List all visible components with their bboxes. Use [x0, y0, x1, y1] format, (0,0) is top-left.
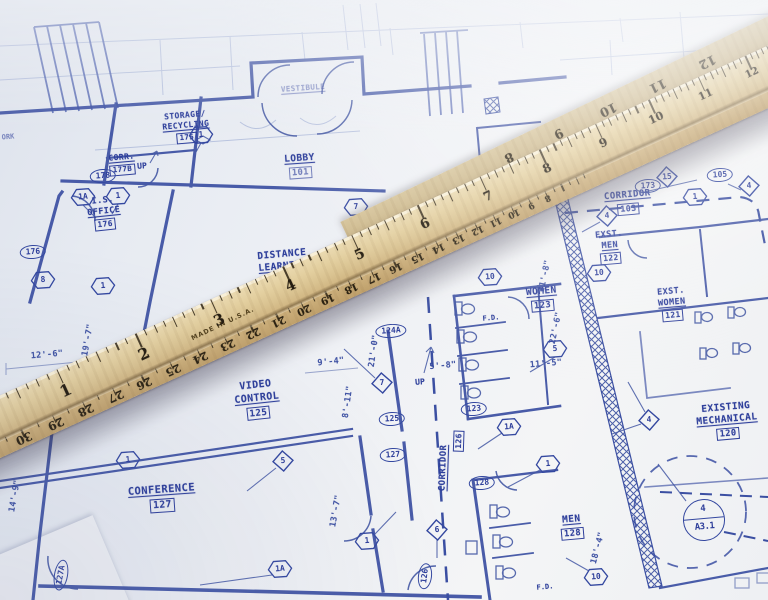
room-number: 176 [94, 218, 116, 232]
ruler-cm-number: 25 [161, 360, 185, 380]
room-label-exst-women: EXST. WOMEN 121 [657, 285, 688, 322]
door-tag-hexagon: 1 [89, 275, 116, 297]
door-tag-hexagon: 5 [541, 338, 568, 360]
ruler-cm-number: 24 [188, 348, 212, 368]
dimension-label: 13'-7" [328, 494, 343, 528]
tag-number: 6 [423, 519, 450, 541]
door-tag-diamond: 4 [635, 409, 662, 431]
room-name: CORRIDOR [438, 445, 451, 492]
room-name: WOMEN [658, 296, 686, 309]
room-name: CONFERENCE [127, 481, 195, 499]
room-number: 126 [453, 430, 465, 452]
tag-number: 5 [269, 450, 296, 472]
room-label-conference: CONFERENCE 127 [127, 481, 196, 514]
tag-number: 1 [187, 124, 214, 146]
door-tag-diamond: 7 [368, 372, 395, 394]
room-number: 127 [150, 498, 176, 513]
edge-text: ORK [1, 132, 14, 141]
tag-number: 1A [69, 186, 96, 208]
door-tag-hexagon: 1A [266, 558, 293, 580]
door-tag-oval: 178 [89, 168, 116, 184]
door-tag-oval: 127 [379, 447, 406, 463]
up-label: UP [415, 377, 425, 387]
room-number: 121 [662, 309, 684, 322]
room-label-men: MEN 128 [559, 513, 584, 541]
door-tag-hexagon: 1 [187, 124, 214, 146]
room-label-corridor-south: CORRIDOR [438, 445, 451, 492]
door-tag-hexagon: 1 [353, 530, 380, 552]
door-tag-oval: 123 [460, 401, 487, 417]
floor-drain-label: F.D. [536, 582, 553, 591]
door-tag-hexagon: 1 [104, 185, 131, 207]
room-name: CORR. [108, 151, 135, 163]
room-label-existing-mechanical: EXISTING MECHANICAL 120 [695, 399, 759, 442]
tag-number: 1 [89, 275, 116, 297]
door-tag-oval: 127A [51, 558, 70, 591]
tag-number: 1A [266, 558, 293, 580]
tag-number: 7 [368, 372, 395, 394]
door-tag-diamond: 5 [269, 450, 296, 472]
room-name: MEN [559, 513, 583, 527]
door-tag-diamond: 6 [423, 519, 450, 541]
door-tag-oval: 125 [378, 411, 405, 427]
door-tag-oval: 176 [19, 244, 46, 260]
room-number: 123 [531, 299, 555, 313]
room-label-vestibule: VESTIBULE [281, 82, 326, 94]
room-number: 128 [561, 527, 585, 541]
room-name: LOBBY [284, 152, 315, 166]
room-label-lobby: LOBBY 101 [284, 152, 316, 180]
door-tag-hexagon: 10 [582, 566, 609, 588]
door-tag-hexagon: 1A [495, 416, 522, 438]
door-tag-hexagon: 8 [29, 269, 56, 291]
up-label: UP [137, 161, 147, 171]
tag-number: 4 [635, 409, 662, 431]
dimension-label: 18'-4" [589, 531, 607, 565]
tag-number: 1 [353, 530, 380, 552]
tag-number: 10 [582, 566, 609, 588]
blueprint-photo: STORAGE/ RECYCLING 175 CORR. 177B LOBBY … [0, 0, 768, 600]
dimension-label: 8'-11" [341, 385, 355, 419]
room-name: VESTIBULE [281, 82, 326, 94]
dimension-label: 5'-8" [429, 360, 457, 372]
room-number-corridor-south: 126 [451, 430, 465, 452]
door-tag-hexagon: 1 [534, 453, 561, 475]
tag-number: 5 [541, 338, 568, 360]
tag-number: 1 [104, 185, 131, 207]
section-marker: 4 A3.1 [681, 497, 727, 543]
room-number: 101 [289, 166, 313, 180]
dimension-label: 12'-6" [30, 349, 63, 362]
tag-number: 1 [534, 453, 561, 475]
door-tag-hexagon: 1A [69, 186, 96, 208]
door-tag-oval: 126 [416, 562, 433, 590]
tag-number: 8 [29, 269, 56, 291]
door-tag-oval: 128 [468, 475, 495, 491]
section-sheet: A3.1 [684, 517, 725, 538]
tag-number: 1A [495, 416, 522, 438]
room-number: 120 [716, 427, 740, 441]
